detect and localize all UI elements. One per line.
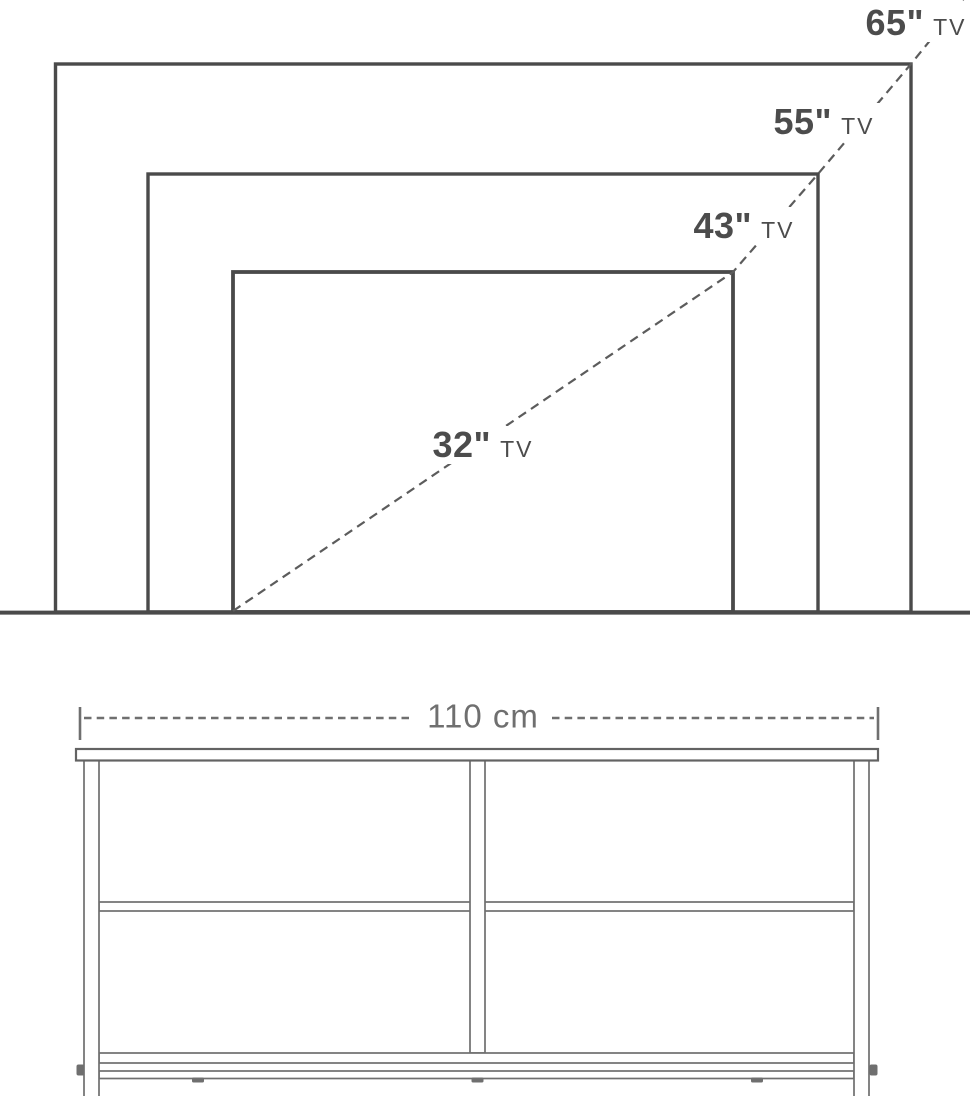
tv-stand-center-divider — [470, 761, 485, 1054]
tv-size-label-65: 65" TV — [858, 4, 970, 42]
tv-size-label-55: 55" TV — [766, 103, 881, 141]
tv-stand-side-nub-left — [77, 1065, 85, 1076]
tv-stand-foot-right — [751, 1078, 763, 1083]
tv-size-value: 65" — [865, 5, 924, 41]
stand-width-dimension-label: 110 cm — [417, 700, 549, 733]
tv-stand-base-rail — [99, 1071, 854, 1079]
tv-size-value: 43" — [693, 208, 752, 244]
tv-size-label-43: 43" TV — [686, 207, 801, 245]
tv-size-label-32: 32" TV — [425, 426, 540, 464]
tv-stand-side-nub-right — [870, 1065, 878, 1076]
tv-stand-right-leg — [854, 761, 869, 1096]
tv-stand-left-leg — [84, 761, 99, 1096]
diagram-drawing — [0, 0, 970, 1096]
tv-size-unit: TV — [500, 438, 533, 461]
tv-size-unit: TV — [761, 219, 794, 242]
tv-stand-foot-left — [192, 1078, 204, 1083]
tv-size-value: 55" — [773, 104, 832, 140]
tv-stand-foot-center — [472, 1078, 484, 1083]
tv-diagonal-dashed-line — [233, 0, 966, 611]
tv-size-unit: TV — [841, 115, 874, 138]
tv-outline-65-rect — [56, 64, 912, 612]
tv-stand-top-panel — [76, 749, 878, 761]
tv-size-unit: TV — [933, 16, 966, 39]
tv-stand-size-diagram: 65" TV 55" TV 43" TV 32" TV 110 cm — [0, 0, 970, 1096]
tv-size-value: 32" — [432, 427, 491, 463]
tv-stand-bottom-shelf — [99, 1053, 854, 1063]
